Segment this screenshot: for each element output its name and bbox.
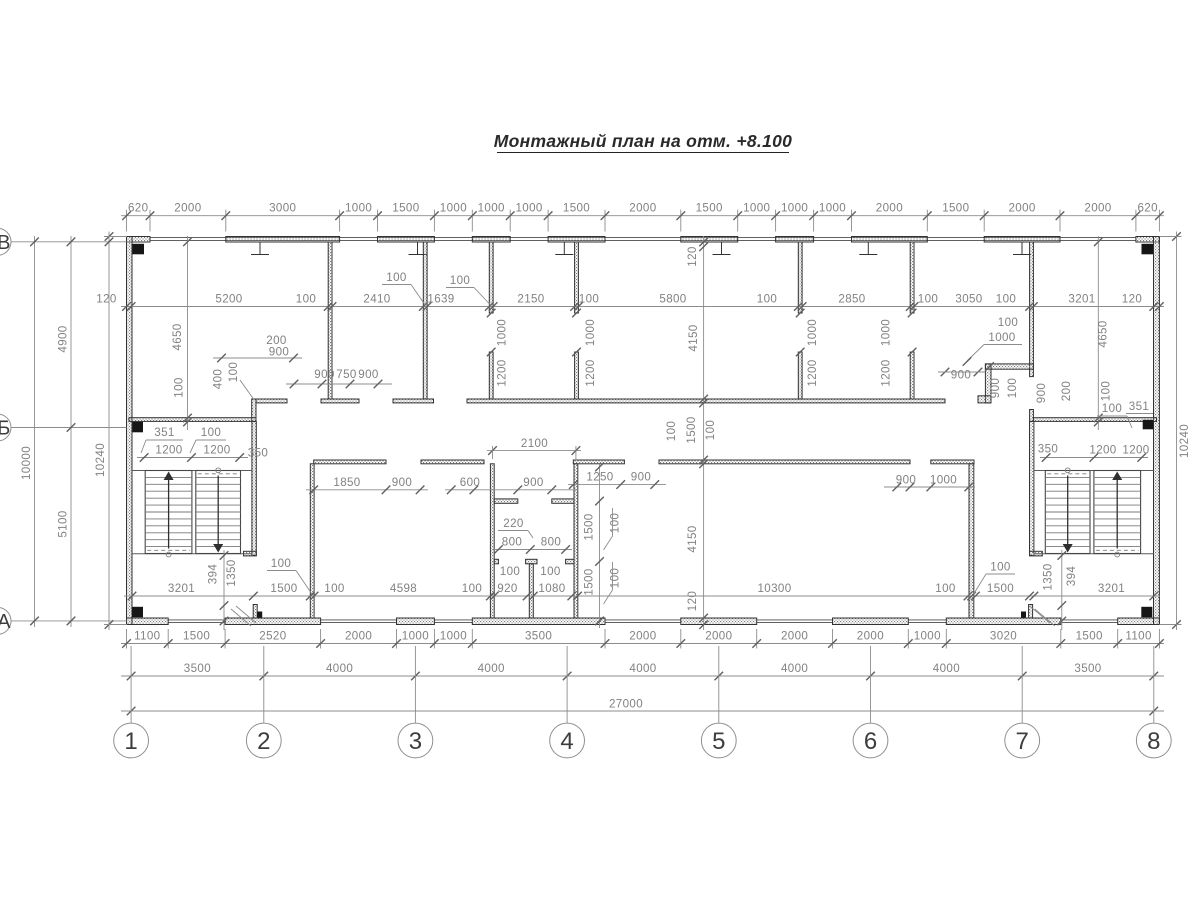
svg-text:1500: 1500 xyxy=(685,416,698,443)
svg-text:620: 620 xyxy=(128,202,148,215)
svg-text:120: 120 xyxy=(686,591,699,611)
svg-text:3020: 3020 xyxy=(990,630,1017,643)
svg-text:800: 800 xyxy=(502,536,522,549)
svg-text:4000: 4000 xyxy=(326,662,353,675)
svg-text:900: 900 xyxy=(1035,383,1048,403)
svg-text:351: 351 xyxy=(154,426,174,439)
svg-text:900: 900 xyxy=(989,378,1002,398)
svg-text:3201: 3201 xyxy=(1098,582,1125,595)
svg-text:1000: 1000 xyxy=(515,202,542,215)
svg-text:100: 100 xyxy=(386,271,406,284)
svg-text:1200: 1200 xyxy=(880,359,893,386)
svg-text:2000: 2000 xyxy=(857,630,884,643)
svg-text:1000: 1000 xyxy=(478,202,505,215)
svg-text:1200: 1200 xyxy=(806,359,819,386)
svg-text:3201: 3201 xyxy=(1068,293,1095,306)
svg-text:5800: 5800 xyxy=(659,293,686,306)
svg-text:4150: 4150 xyxy=(686,525,699,552)
svg-text:100: 100 xyxy=(1006,378,1019,398)
svg-text:4000: 4000 xyxy=(781,662,808,675)
svg-text:1500: 1500 xyxy=(942,202,969,215)
svg-text:100: 100 xyxy=(462,582,482,595)
svg-text:100: 100 xyxy=(201,426,221,439)
svg-text:100: 100 xyxy=(324,582,344,595)
svg-text:1000: 1000 xyxy=(440,630,467,643)
svg-text:120: 120 xyxy=(1122,293,1142,306)
svg-text:2000: 2000 xyxy=(1008,202,1035,215)
svg-text:1350: 1350 xyxy=(225,559,238,586)
svg-text:100: 100 xyxy=(935,582,955,595)
svg-text:750: 750 xyxy=(336,368,356,381)
svg-text:900: 900 xyxy=(523,476,543,489)
svg-text:2000: 2000 xyxy=(781,630,808,643)
svg-text:4598: 4598 xyxy=(390,582,417,595)
svg-text:1000: 1000 xyxy=(880,319,893,346)
svg-text:1200: 1200 xyxy=(584,359,597,386)
svg-text:100: 100 xyxy=(173,377,186,397)
svg-text:4000: 4000 xyxy=(933,662,960,675)
svg-text:3201: 3201 xyxy=(168,582,195,595)
svg-text:1350: 1350 xyxy=(1042,563,1055,590)
svg-text:1200: 1200 xyxy=(1089,444,1116,457)
svg-text:100: 100 xyxy=(609,568,622,588)
svg-text:4000: 4000 xyxy=(478,662,505,675)
svg-text:1500: 1500 xyxy=(583,568,596,595)
svg-text:1500: 1500 xyxy=(183,630,210,643)
svg-text:100: 100 xyxy=(609,513,622,533)
svg-text:900: 900 xyxy=(951,369,971,382)
svg-text:Б: Б xyxy=(0,418,11,440)
svg-text:А: А xyxy=(0,611,11,633)
svg-text:2000: 2000 xyxy=(174,202,201,215)
svg-text:1000: 1000 xyxy=(806,319,819,346)
svg-text:100: 100 xyxy=(271,557,291,570)
svg-text:1000: 1000 xyxy=(743,202,770,215)
svg-text:920: 920 xyxy=(497,582,517,595)
svg-text:1500: 1500 xyxy=(987,582,1014,595)
svg-text:1080: 1080 xyxy=(538,582,565,595)
svg-text:2150: 2150 xyxy=(517,293,544,306)
svg-text:100: 100 xyxy=(1102,402,1122,415)
svg-text:4900: 4900 xyxy=(57,325,70,352)
svg-text:6: 6 xyxy=(864,728,877,755)
svg-text:120: 120 xyxy=(686,246,699,266)
svg-text:900: 900 xyxy=(896,474,916,487)
svg-text:200: 200 xyxy=(1060,381,1073,401)
svg-text:100: 100 xyxy=(918,293,938,306)
svg-text:5200: 5200 xyxy=(215,293,242,306)
svg-text:2000: 2000 xyxy=(876,202,903,215)
svg-text:1200: 1200 xyxy=(155,444,182,457)
svg-text:Монтажный план на отм. +8.100: Монтажный план на отм. +8.100 xyxy=(494,131,792,151)
svg-text:5100: 5100 xyxy=(57,510,70,537)
svg-text:1200: 1200 xyxy=(496,359,509,386)
svg-text:1200: 1200 xyxy=(203,444,230,457)
svg-text:1500: 1500 xyxy=(563,202,590,215)
svg-text:100: 100 xyxy=(450,274,470,287)
svg-text:2850: 2850 xyxy=(838,293,865,306)
svg-text:3500: 3500 xyxy=(525,630,552,643)
svg-text:1000: 1000 xyxy=(584,319,597,346)
svg-text:100: 100 xyxy=(540,565,560,578)
svg-text:1500: 1500 xyxy=(583,513,596,540)
svg-text:100: 100 xyxy=(990,561,1010,574)
svg-text:7: 7 xyxy=(1016,728,1029,755)
svg-text:8: 8 xyxy=(1147,728,1160,755)
svg-text:2000: 2000 xyxy=(705,630,732,643)
svg-text:1500: 1500 xyxy=(1076,630,1103,643)
svg-text:4650: 4650 xyxy=(171,323,184,350)
svg-text:1850: 1850 xyxy=(333,476,360,489)
svg-text:2: 2 xyxy=(257,728,270,755)
svg-text:3500: 3500 xyxy=(184,662,211,675)
svg-text:1000: 1000 xyxy=(988,331,1015,344)
svg-text:2100: 2100 xyxy=(521,437,548,450)
svg-text:1000: 1000 xyxy=(914,630,941,643)
svg-text:350: 350 xyxy=(1038,443,1058,456)
svg-text:4650: 4650 xyxy=(1097,320,1110,347)
svg-text:1000: 1000 xyxy=(440,202,467,215)
svg-text:2000: 2000 xyxy=(1084,202,1111,215)
svg-text:2410: 2410 xyxy=(363,293,390,306)
svg-text:394: 394 xyxy=(207,564,220,585)
svg-text:900: 900 xyxy=(631,471,651,484)
svg-text:394: 394 xyxy=(1065,566,1078,587)
svg-text:100: 100 xyxy=(227,362,240,382)
svg-text:351: 351 xyxy=(1129,400,1149,413)
svg-text:1: 1 xyxy=(124,728,137,755)
svg-text:100: 100 xyxy=(665,421,678,441)
svg-text:350: 350 xyxy=(248,447,268,460)
svg-text:4: 4 xyxy=(560,728,573,755)
svg-text:10240: 10240 xyxy=(1178,424,1191,458)
svg-text:1100: 1100 xyxy=(134,630,160,643)
svg-text:1639: 1639 xyxy=(427,293,454,306)
svg-text:2520: 2520 xyxy=(259,630,286,643)
svg-text:1000: 1000 xyxy=(496,319,509,346)
svg-text:600: 600 xyxy=(460,476,480,489)
svg-text:3500: 3500 xyxy=(1074,662,1101,675)
svg-text:120: 120 xyxy=(96,293,116,306)
svg-text:100: 100 xyxy=(757,293,777,306)
svg-text:В: В xyxy=(0,232,11,254)
svg-text:1200: 1200 xyxy=(1122,444,1149,457)
svg-text:1000: 1000 xyxy=(781,202,808,215)
svg-text:100: 100 xyxy=(500,565,520,578)
svg-text:900: 900 xyxy=(392,476,412,489)
svg-text:800: 800 xyxy=(541,536,561,549)
svg-text:220: 220 xyxy=(503,517,523,530)
svg-text:2000: 2000 xyxy=(345,630,372,643)
svg-text:2000: 2000 xyxy=(629,630,656,643)
svg-text:4150: 4150 xyxy=(687,324,700,351)
svg-text:3000: 3000 xyxy=(269,202,296,215)
svg-text:1000: 1000 xyxy=(819,202,846,215)
svg-text:100: 100 xyxy=(579,293,599,306)
svg-text:27000: 27000 xyxy=(609,698,643,711)
svg-text:100: 100 xyxy=(1100,381,1113,401)
svg-text:900: 900 xyxy=(358,368,378,381)
svg-text:100: 100 xyxy=(998,316,1018,329)
svg-text:3: 3 xyxy=(409,728,422,755)
svg-text:1100: 1100 xyxy=(1125,630,1151,643)
svg-text:3050: 3050 xyxy=(955,293,982,306)
svg-text:100: 100 xyxy=(296,293,316,306)
svg-text:1250: 1250 xyxy=(586,471,613,484)
svg-text:10300: 10300 xyxy=(758,582,792,595)
svg-text:10000: 10000 xyxy=(20,446,33,480)
svg-text:1500: 1500 xyxy=(392,202,419,215)
svg-text:10240: 10240 xyxy=(94,443,107,477)
svg-text:1500: 1500 xyxy=(696,202,723,215)
svg-text:4000: 4000 xyxy=(629,662,656,675)
svg-text:620: 620 xyxy=(1137,202,1157,215)
svg-text:1000: 1000 xyxy=(345,202,372,215)
svg-text:400: 400 xyxy=(212,369,225,389)
svg-text:2000: 2000 xyxy=(629,202,656,215)
svg-text:5: 5 xyxy=(712,728,725,755)
svg-text:900: 900 xyxy=(269,346,289,359)
svg-text:100: 100 xyxy=(996,293,1016,306)
svg-text:1000: 1000 xyxy=(930,474,957,487)
svg-text:100: 100 xyxy=(704,420,717,440)
svg-text:1500: 1500 xyxy=(270,582,297,595)
svg-text:900: 900 xyxy=(314,368,334,381)
svg-text:1000: 1000 xyxy=(402,630,429,643)
